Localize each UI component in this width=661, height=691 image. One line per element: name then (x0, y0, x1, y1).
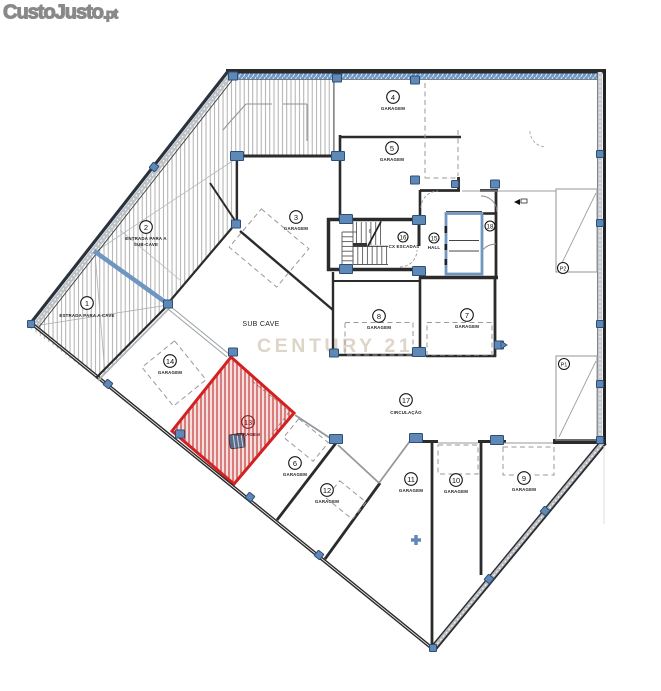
svg-text:GARAGEM: GARAGEM (380, 157, 404, 162)
svg-text:CustoJusto.pt: CustoJusto.pt (3, 2, 118, 24)
svg-text:P2: P2 (560, 267, 567, 273)
svg-text:CX ESCADAS: CX ESCADAS (389, 244, 420, 249)
svg-text:15: 15 (431, 235, 438, 242)
svg-text:ENTRADA PARA A: ENTRADA PARA A (125, 236, 167, 241)
svg-text:1: 1 (85, 299, 89, 308)
svg-text:10: 10 (452, 476, 460, 485)
svg-text:16: 16 (400, 234, 407, 241)
svg-text:GARAGEM: GARAGEM (158, 370, 182, 375)
svg-text:6: 6 (369, 229, 372, 235)
svg-text:GARAGEM: GARAGEM (283, 472, 307, 477)
svg-text:9: 9 (522, 474, 526, 483)
svg-text:8: 8 (377, 312, 381, 321)
svg-text:13: 13 (244, 418, 252, 427)
svg-text:14: 14 (166, 357, 174, 366)
svg-text:GARAGEM: GARAGEM (512, 487, 536, 492)
svg-text:CIRCULAÇÃO: CIRCULAÇÃO (390, 410, 422, 415)
svg-text:GARAGEM: GARAGEM (444, 489, 468, 494)
svg-text:11: 11 (407, 475, 415, 484)
svg-text:GARAGEM: GARAGEM (455, 324, 479, 329)
svg-text:SUB CAVE: SUB CAVE (242, 321, 279, 328)
svg-text:SUB-CAVE: SUB-CAVE (134, 242, 158, 247)
svg-text:4: 4 (391, 93, 395, 102)
svg-text:18: 18 (487, 223, 494, 230)
svg-text:3: 3 (294, 213, 298, 222)
svg-text:GARAGEM: GARAGEM (315, 499, 339, 504)
svg-text:P1: P1 (561, 363, 568, 369)
svg-text:GARAGEM: GARAGEM (381, 106, 405, 111)
svg-text:2: 2 (144, 223, 148, 232)
svg-text:GARAGEM: GARAGEM (399, 488, 423, 493)
svg-text:GARAGEM: GARAGEM (367, 325, 391, 330)
svg-text:GARAGEM: GARAGEM (284, 226, 308, 231)
svg-text:17: 17 (402, 396, 410, 405)
svg-text:GARAGEM: GARAGEM (236, 432, 260, 437)
svg-text:7: 7 (465, 311, 469, 320)
svg-text:5: 5 (390, 144, 394, 153)
svg-text:6: 6 (293, 459, 297, 468)
svg-text:ESTRADA PARA A CAVE: ESTRADA PARA A CAVE (59, 313, 114, 318)
svg-text:HALL: HALL (428, 245, 441, 250)
svg-text:12: 12 (323, 486, 331, 495)
